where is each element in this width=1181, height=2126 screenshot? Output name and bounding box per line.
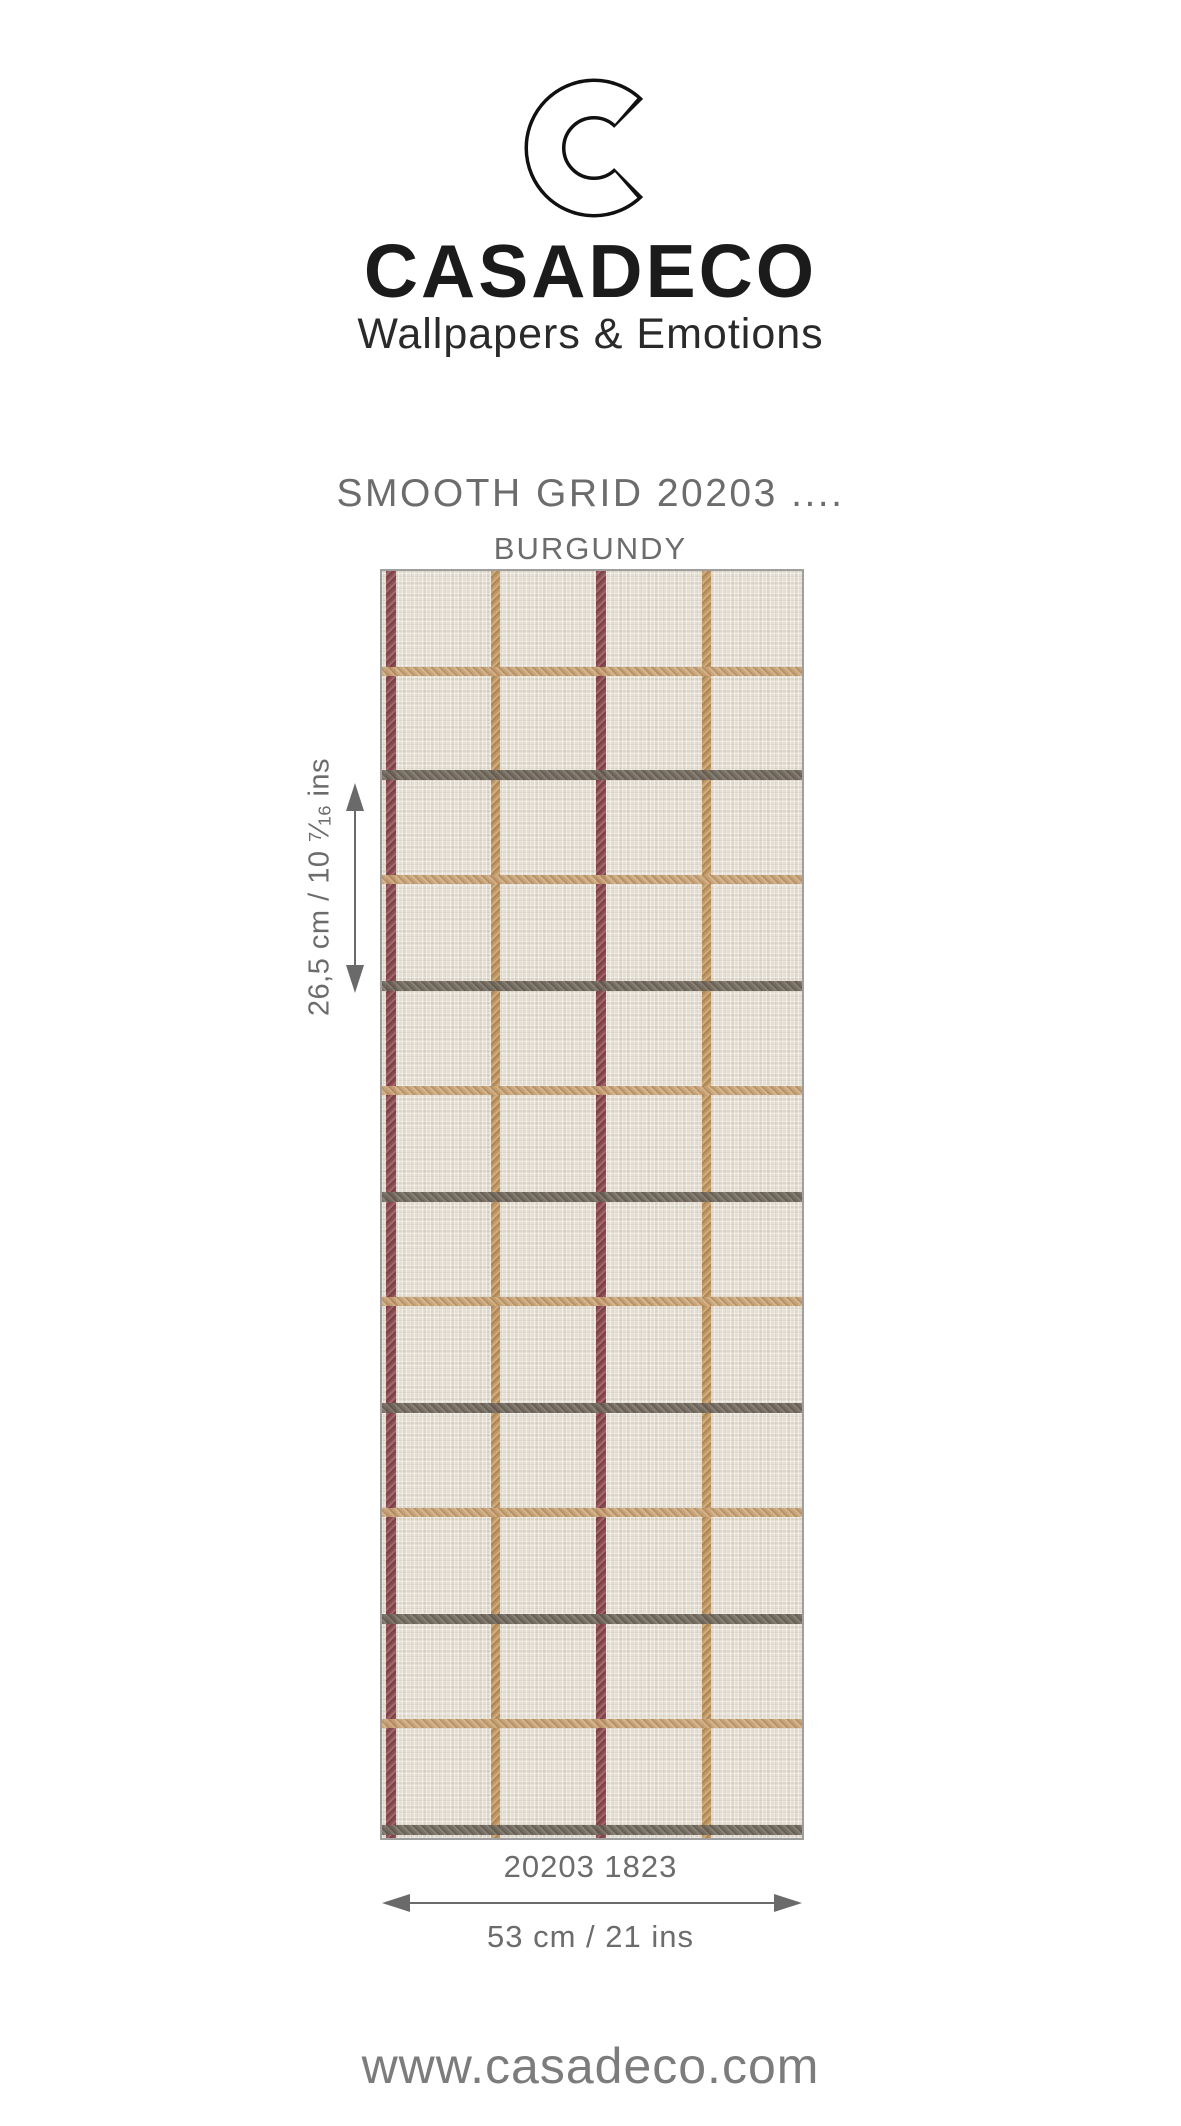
swatch-stripe-horizontal-gray [382,1192,802,1202]
swatch-stripe-vertical-tan_vertical [491,571,500,1838]
swatch-stripe-vertical-burgundy [386,571,396,1838]
casadeco-c-logo-icon [522,76,666,220]
wallpaper-swatch [380,569,804,1840]
swatch-stripe-horizontal-gray [382,1825,802,1835]
swatch-stripe-horizontal-tan_horizontal [382,875,802,884]
horizontal-dimension-label: 53 cm / 21 ins [0,1921,1181,1952]
brand-tagline: Wallpapers & Emotions [0,313,1181,356]
swatch-stripe-horizontal-tan_horizontal [382,1297,802,1306]
vertical-dimension-suffix: ins [304,758,336,805]
swatch-pattern [382,571,802,1838]
website-url: www.casadeco.com [0,2041,1181,2091]
swatch-stripe-horizontal-tan_horizontal [382,1719,802,1728]
vertical-dimension-arrow-icon [343,781,367,995]
product-colorway: BURGUNDY [0,533,1181,564]
swatch-stripe-horizontal-gray [382,1614,802,1624]
swatch-stripe-horizontal-tan_horizontal [382,1508,802,1517]
swatch-stripe-horizontal-tan_horizontal [382,667,802,676]
swatch-stripe-vertical-tan_vertical [702,571,711,1838]
swatch-stripe-horizontal-gray [382,1403,802,1413]
fraction-denominator: 16 [314,805,334,826]
product-sheet: CASADECO Wallpapers & Emotions SMOOTH GR… [0,0,1181,2126]
swatch-stripe-vertical-burgundy [596,571,606,1838]
swatch-stripe-horizontal-tan_horizontal [382,1086,802,1095]
swatch-stripe-horizontal-gray [382,770,802,780]
fraction-slash: ⁄ [304,826,336,831]
vertical-dimension-prefix: 26,5 cm / 10 [304,842,336,1016]
brand-name: CASADECO [0,234,1181,309]
product-code: 20203 1823 [0,1851,1181,1882]
swatch-stripe-horizontal-gray [382,981,802,991]
horizontal-dimension-arrow-icon [380,1892,804,1914]
product-title: SMOOTH GRID 20203 .... [0,474,1181,513]
fraction-numerator: 7 [305,831,325,842]
vertical-dimension-label: 26,5 cm / 10 7⁄16 ins [304,758,337,1016]
